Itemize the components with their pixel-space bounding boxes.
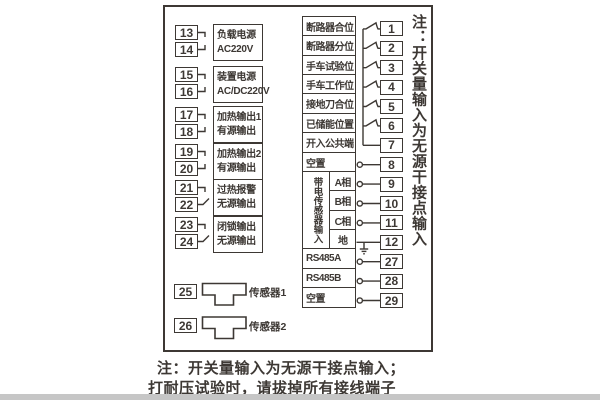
terminal-29: 29 bbox=[380, 293, 403, 308]
terminal-18: 18 bbox=[175, 124, 198, 139]
terminal-27: 27 bbox=[380, 254, 403, 269]
terminal-12: 12 bbox=[380, 235, 403, 250]
terminal-28: 28 bbox=[380, 274, 403, 289]
label-line: 闭锁输出 bbox=[217, 221, 262, 235]
label-device-power: 装置电源 AC/DC220V bbox=[213, 66, 263, 103]
label-line: 有源输出 bbox=[217, 125, 262, 139]
terminal-5: 5 bbox=[380, 99, 403, 114]
terminal-9: 9 bbox=[380, 177, 403, 192]
label-line: 无源输出 bbox=[217, 235, 262, 249]
terminal-10: 10 bbox=[380, 196, 403, 211]
terminal-13: 13 bbox=[175, 25, 198, 40]
terminal-17: 17 bbox=[175, 107, 198, 122]
terminal-16: 16 bbox=[175, 84, 198, 99]
terminal-wiring-diagram: 13 14 15 16 17 18 19 20 21 22 23 24 负载电源… bbox=[0, 0, 600, 400]
label-line: 加热输出2 bbox=[217, 148, 262, 162]
input-label-energy-stored: 已储能位置 bbox=[302, 113, 356, 134]
terminal-11: 11 bbox=[380, 215, 403, 230]
terminal-22: 22 bbox=[175, 197, 198, 212]
terminal-25: 25 bbox=[174, 284, 197, 299]
input-label-cart-test: 手车试验位 bbox=[302, 55, 356, 76]
terminal-21: 21 bbox=[175, 180, 198, 195]
input-label-cart-work: 手车工作位 bbox=[302, 74, 356, 95]
label-line: 无源输出 bbox=[217, 198, 262, 212]
label-line: 装置电源 bbox=[217, 71, 262, 85]
bottom-gray-band bbox=[0, 394, 600, 400]
input-label-rs485a: RS485A bbox=[302, 248, 356, 269]
sensor-1-label: 传感器1 bbox=[249, 285, 286, 300]
input-label-phase-c: C相 bbox=[329, 210, 356, 231]
live-sensor-input-block: 带电传感器输入 bbox=[302, 171, 331, 250]
input-label-spare-29: 空置 bbox=[302, 287, 356, 308]
label-heater-output-2: 加热输出2 有源输出 bbox=[213, 143, 263, 180]
bottom-note-line-1: 注：开关量输入为无源干接点输入； bbox=[157, 357, 405, 378]
input-label-phase-a: A相 bbox=[329, 171, 356, 192]
side-note: 注：开关量输入为无源干接点输入 bbox=[407, 14, 429, 264]
terminal-14: 14 bbox=[175, 42, 198, 57]
sensor-2-label: 传感器2 bbox=[249, 319, 286, 334]
terminal-19: 19 bbox=[175, 144, 198, 159]
terminal-24: 24 bbox=[175, 234, 198, 249]
terminal-26: 26 bbox=[174, 318, 197, 333]
label-line: 负载电源 bbox=[217, 29, 262, 43]
label-overheat-alarm: 过热报警 无源输出 bbox=[213, 179, 263, 216]
label-heater-output-1: 加热输出1 有源输出 bbox=[213, 106, 263, 143]
terminal-2: 2 bbox=[380, 41, 403, 56]
terminal-20: 20 bbox=[175, 161, 198, 176]
terminal-4: 4 bbox=[380, 80, 403, 95]
input-label-spare-8: 空置 bbox=[302, 152, 356, 173]
input-label-breaker-closed: 断路器合位 bbox=[302, 16, 356, 37]
label-line: 加热输出1 bbox=[217, 111, 262, 125]
terminal-23: 23 bbox=[175, 217, 198, 232]
terminal-15: 15 bbox=[175, 67, 198, 82]
label-line: AC220V bbox=[217, 43, 262, 57]
input-label-breaker-open: 断路器分位 bbox=[302, 35, 356, 56]
terminal-8: 8 bbox=[380, 157, 403, 172]
terminal-3: 3 bbox=[380, 60, 403, 75]
label-load-power: 负载电源 AC220V bbox=[213, 24, 263, 61]
input-label-earth: 地 bbox=[329, 229, 356, 250]
input-label-rs485b: RS485B bbox=[302, 268, 356, 289]
live-sensor-input-label: 带电传感器输入 bbox=[310, 177, 324, 244]
label-line: 过热报警 bbox=[217, 184, 262, 198]
label-line: AC/DC220V bbox=[217, 85, 262, 99]
label-line: 有源输出 bbox=[217, 162, 262, 176]
input-label-common: 开入公共端 bbox=[302, 132, 356, 153]
input-label-earth-knife: 接地刀合位 bbox=[302, 93, 356, 114]
terminal-7: 7 bbox=[380, 138, 403, 153]
label-lockout-output: 闭锁输出 无源输出 bbox=[213, 216, 263, 253]
input-label-phase-b: B相 bbox=[329, 190, 356, 211]
terminal-6: 6 bbox=[380, 118, 403, 133]
terminal-1: 1 bbox=[380, 21, 403, 36]
